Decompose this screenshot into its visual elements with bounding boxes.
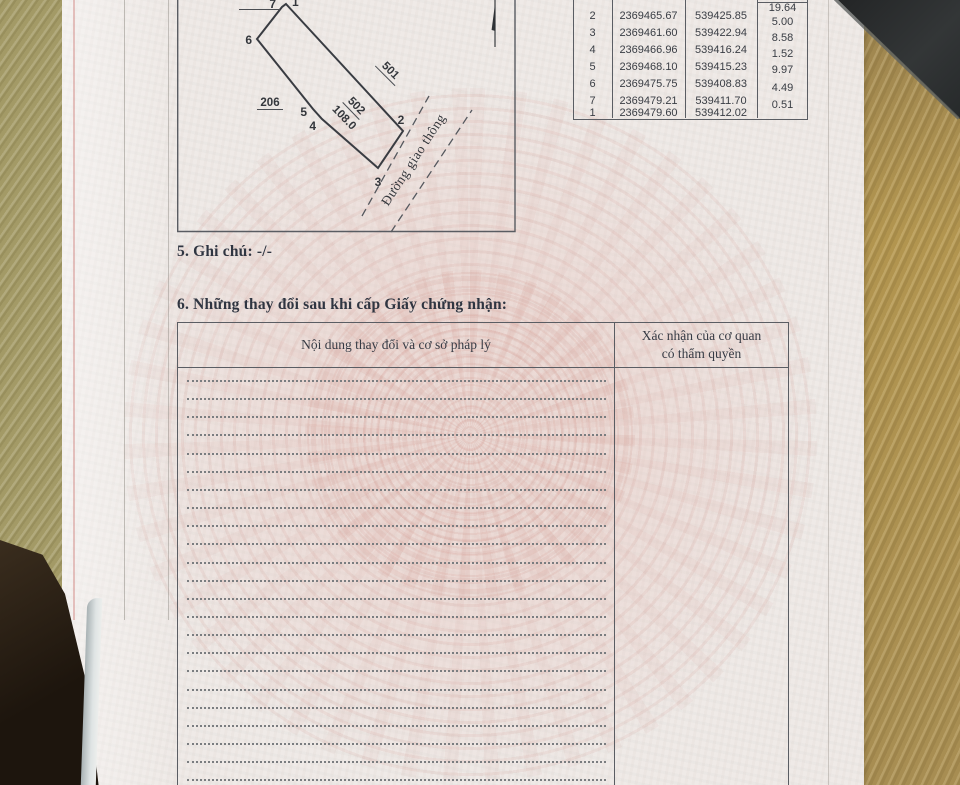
point-id: 1 [573, 108, 612, 119]
svg-text:206: 206 [260, 97, 279, 109]
coord-x: 2369479.21 [612, 96, 685, 107]
dotted-fill-line [187, 634, 606, 636]
dotted-fill-line [187, 525, 606, 527]
vertex-label-4: 4 [309, 119, 316, 133]
dotted-fill-line [187, 707, 606, 709]
north-arrow-icon [492, 0, 496, 47]
coord-y: 539416.24 [685, 45, 757, 56]
dotted-fill-line [187, 689, 606, 691]
coord-y: 539408.83 [685, 79, 757, 90]
cadastral-map: 1 7 6 5 4 3 2 501 502 108.0 206 Đường gi… [177, 0, 516, 233]
coordinate-row: 1 2369479.60 539412.02 [573, 0, 757, 3]
page-edge-line [73, 0, 75, 620]
point-id: 2 [573, 11, 612, 22]
edge-length-value: 19.64 [757, 3, 808, 14]
coordinate-row: 6 2369475.75 539408.83 [573, 79, 757, 90]
dotted-fill-line [187, 761, 606, 763]
edge-length-value: 8.58 [757, 33, 808, 44]
dotted-fill-line [187, 580, 606, 582]
point-id: 7 [573, 96, 612, 107]
desk-wood-right [856, 0, 960, 785]
dotted-fill-line [187, 725, 606, 727]
vertex-label-6: 6 [245, 33, 252, 47]
coordinate-row: 7 2369479.21 539411.70 [573, 96, 757, 107]
changes-col2-header-line2: có thẩm quyền [615, 345, 788, 363]
parcel-label-group: 502 108.0 [329, 92, 370, 133]
coord-x: 2369479.60 [612, 0, 685, 3]
point-id: 3 [573, 28, 612, 39]
coord-y: 539412.02 [685, 108, 757, 119]
coord-x: 2369475.75 [612, 79, 685, 90]
dotted-fill-line [187, 543, 606, 545]
dotted-fill-line [187, 398, 606, 400]
neighbor-parcel-501-label: 501 [375, 57, 404, 86]
parcel-polygon [257, 4, 403, 168]
coordinate-row: 3 2369461.60 539422.94 [573, 28, 757, 39]
point-id: 1 [573, 0, 612, 3]
dotted-fill-line [187, 670, 606, 672]
coord-y: 539411.70 [685, 96, 757, 107]
coord-x: 2369479.60 [612, 108, 685, 119]
changes-table-divider [614, 368, 615, 785]
photo-scene: 1 7 6 5 4 3 2 501 502 108.0 206 Đường gi… [0, 0, 960, 785]
coordinate-row: 2 2369465.67 539425.85 [573, 11, 757, 22]
edge-length-value: 9.97 [757, 65, 808, 76]
coord-y: 539412.02 [685, 0, 757, 3]
dotted-fill-line [187, 779, 606, 781]
coordinate-row: 4 2369466.96 539416.24 [573, 45, 757, 56]
vertex-label-7: 7 [269, 0, 276, 11]
vertex-label-5: 5 [300, 105, 307, 119]
dotted-fill-line [187, 416, 606, 418]
dotted-fill-line [187, 507, 606, 509]
certificate-page: 1 7 6 5 4 3 2 501 502 108.0 206 Đường gi… [62, 0, 864, 785]
coordinate-table: 1 2369479.60 539412.02 2 2369465.67 5394… [573, 0, 808, 120]
dotted-fill-line [187, 453, 606, 455]
coord-x: 2369466.96 [612, 45, 685, 56]
coord-x: 2369461.60 [612, 28, 685, 39]
page-fold-line [828, 0, 829, 785]
vertex-label-1: 1 [292, 0, 299, 9]
edge-length-value: 1.52 [757, 49, 808, 60]
changes-col2-header-line1: Xác nhận của cơ quan [615, 327, 788, 345]
coordinate-row: 1 2369479.60 539412.02 [573, 108, 757, 119]
changes-table-header: Nội dung thay đổi và cơ sở pháp lý Xác n… [178, 323, 788, 368]
coordinate-row: 5 2369468.10 539415.23 [573, 62, 757, 73]
dotted-fill-line [187, 434, 606, 436]
edge-length-value: 0.51 [757, 100, 808, 111]
coord-y: 539422.94 [685, 28, 757, 39]
vertex-label-2: 2 [398, 113, 405, 127]
dotted-fill-line [187, 562, 606, 564]
point-id: 4 [573, 45, 612, 56]
changes-table-body [178, 368, 788, 785]
dotted-fill-line [187, 598, 606, 600]
dotted-fill-line [187, 489, 606, 491]
neighbor-parcel-206-label: 206 [257, 97, 283, 110]
changes-col2-header: Xác nhận của cơ quan có thẩm quyền [615, 323, 788, 367]
coord-y: 539415.23 [685, 62, 757, 73]
edge-length-value: 4.49 [757, 83, 808, 94]
changes-section-title: 6. Những thay đổi sau khi cấp Giấy chứng… [177, 296, 507, 314]
dotted-fill-line [187, 380, 606, 382]
svg-text:501: 501 [379, 60, 401, 82]
changes-col1-header: Nội dung thay đổi và cơ sở pháp lý [178, 323, 615, 367]
note-section-title: 5. Ghi chú: -/- [177, 243, 272, 261]
point-id: 6 [573, 79, 612, 90]
changes-table: Nội dung thay đổi và cơ sở pháp lý Xác n… [177, 322, 789, 785]
point-id: 5 [573, 62, 612, 73]
coord-x: 2369468.10 [612, 62, 685, 73]
edge-length-value: 5.00 [757, 17, 808, 28]
dotted-fill-line [187, 652, 606, 654]
coord-y: 539425.85 [685, 11, 757, 22]
dotted-fill-line [187, 471, 606, 473]
dotted-fill-line [187, 616, 606, 618]
coord-x: 2369465.67 [612, 11, 685, 22]
page-edge-line [124, 0, 125, 620]
vertex-label-3: 3 [375, 175, 382, 189]
page-edge-line [168, 0, 169, 620]
dotted-fill-line [187, 743, 606, 745]
